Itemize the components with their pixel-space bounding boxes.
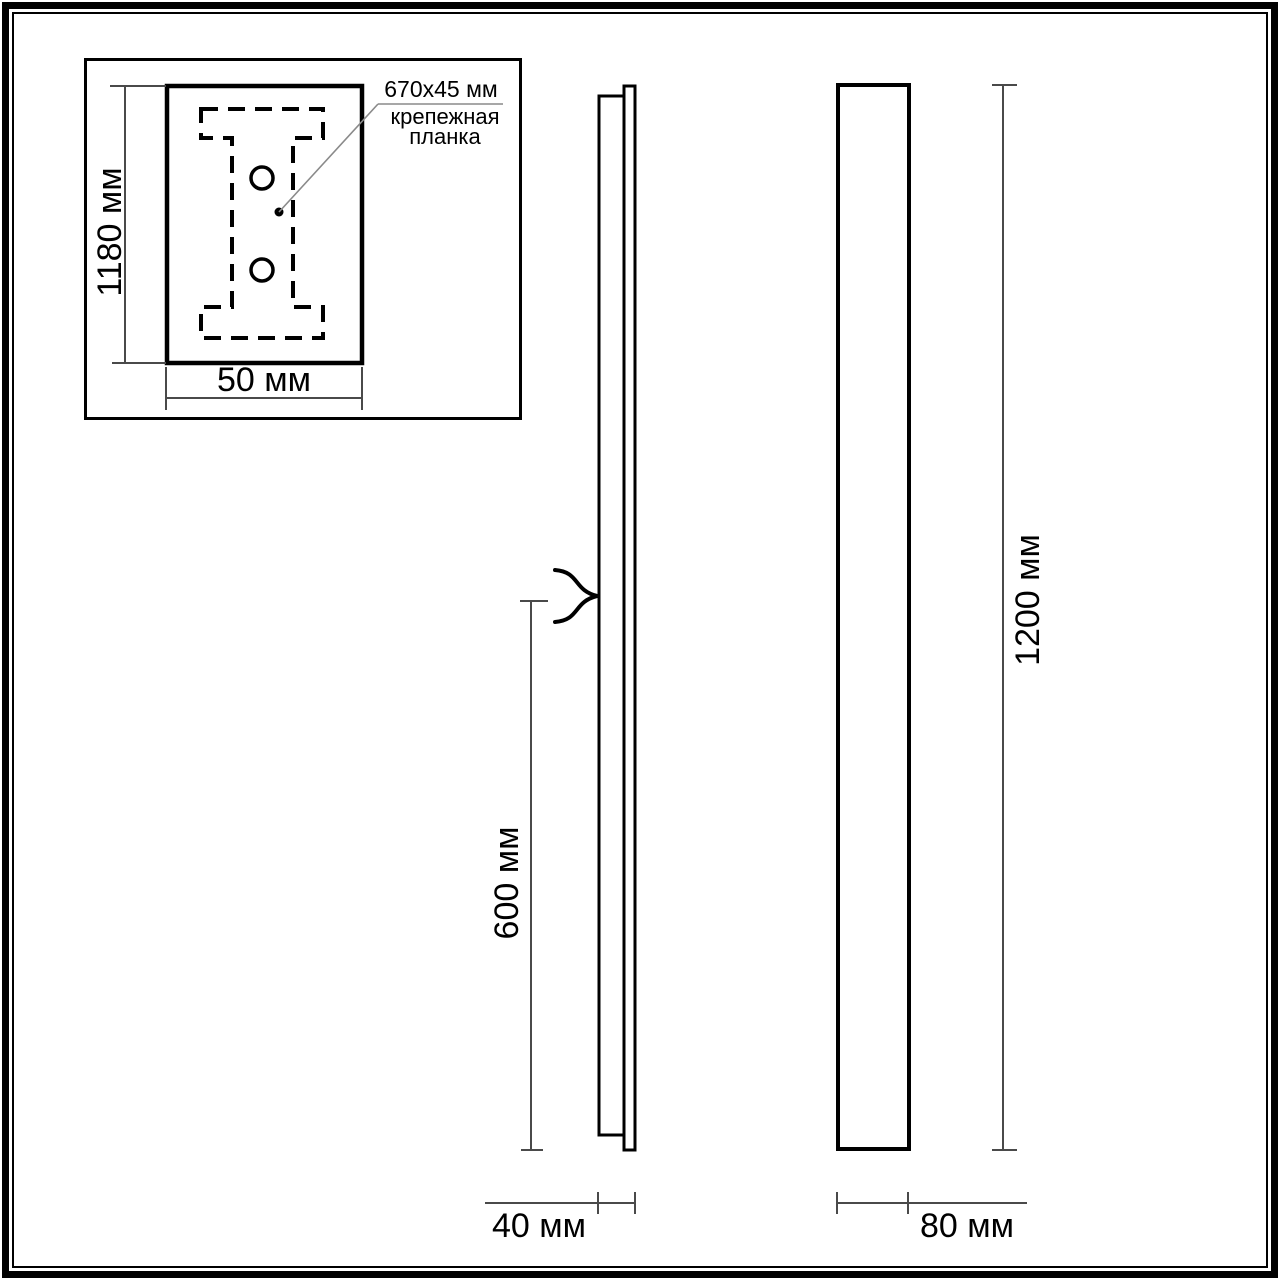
technical-drawing: 1180 мм 50 мм 670x45 мм крепежная планка…: [0, 0, 1280, 1280]
back-view-outline: [167, 86, 362, 363]
mount-plate-size-label: 670x45 мм: [361, 76, 521, 102]
dim-50-label: 50 мм: [164, 360, 364, 400]
brace-pointer: [555, 570, 597, 622]
dim-600-label: 600 мм: [487, 773, 527, 993]
drawing-linework: [0, 0, 1280, 1280]
side-view-wall-bracket: [624, 86, 635, 1150]
side-view-body: [599, 96, 624, 1135]
front-view: [837, 85, 1027, 1214]
mount-plate-name-label: крепежная планка: [375, 107, 515, 147]
side-profile-view: [485, 86, 636, 1214]
dim-80-label: 80 мм: [867, 1206, 1067, 1246]
dim-1180-label: 1180 мм: [90, 122, 130, 342]
dim-1200-label: 1200 мм: [1008, 480, 1048, 720]
dim-40-label: 40 мм: [439, 1206, 639, 1246]
front-view-outline: [838, 85, 909, 1149]
